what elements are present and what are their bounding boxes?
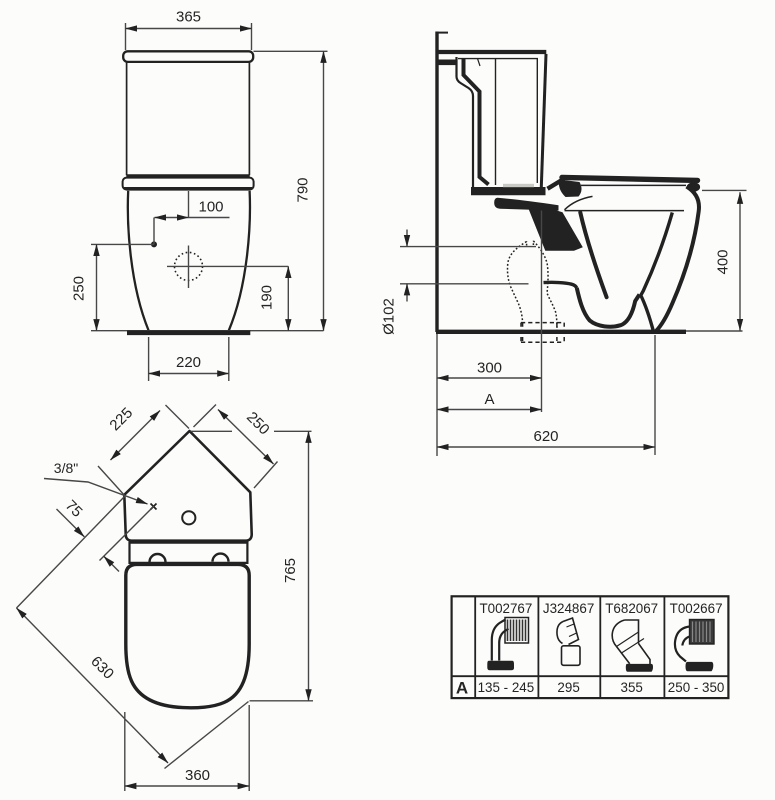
svg-text:T002667: T002667 xyxy=(670,601,723,616)
svg-text:190: 190 xyxy=(259,285,276,310)
svg-text:220: 220 xyxy=(176,354,201,371)
svg-text:355: 355 xyxy=(621,680,643,695)
svg-text:J324867: J324867 xyxy=(543,601,594,616)
svg-text:295: 295 xyxy=(557,680,579,695)
svg-text:250: 250 xyxy=(71,276,88,301)
svg-text:630: 630 xyxy=(87,653,117,683)
svg-text:250 - 350: 250 - 350 xyxy=(668,680,725,695)
svg-text:360: 360 xyxy=(185,767,210,784)
svg-text:400: 400 xyxy=(715,249,732,274)
svg-text:A: A xyxy=(456,679,468,698)
svg-text:Ø102: Ø102 xyxy=(381,298,398,335)
svg-text:620: 620 xyxy=(533,428,558,445)
svg-text:T682067: T682067 xyxy=(605,601,658,616)
svg-text:3/8": 3/8" xyxy=(54,460,78,476)
svg-text:T002767: T002767 xyxy=(479,601,532,616)
svg-text:250: 250 xyxy=(243,409,273,439)
svg-text:A: A xyxy=(484,391,494,408)
svg-text:300: 300 xyxy=(477,360,502,377)
svg-text:765: 765 xyxy=(282,558,299,583)
svg-text:100: 100 xyxy=(198,199,223,216)
svg-text:135 - 245: 135 - 245 xyxy=(478,680,535,695)
svg-text:225: 225 xyxy=(106,404,136,434)
svg-text:365: 365 xyxy=(176,9,201,26)
svg-text:790: 790 xyxy=(295,177,312,202)
